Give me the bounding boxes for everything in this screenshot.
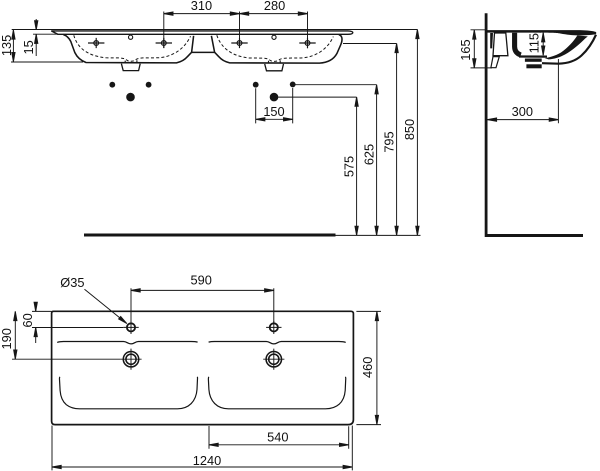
svg-text:540: 540	[267, 430, 288, 445]
svg-text:575: 575	[341, 156, 356, 177]
svg-text:795: 795	[381, 131, 396, 152]
svg-text:280: 280	[264, 0, 285, 13]
svg-text:150: 150	[263, 104, 284, 119]
svg-text:115: 115	[527, 33, 542, 53]
svg-text:590: 590	[191, 272, 212, 287]
svg-text:135: 135	[0, 35, 14, 56]
svg-text:850: 850	[402, 119, 417, 140]
svg-text:1240: 1240	[193, 453, 221, 468]
svg-text:15: 15	[21, 40, 36, 54]
svg-text:625: 625	[361, 144, 376, 165]
svg-text:165: 165	[458, 39, 473, 60]
svg-text:460: 460	[360, 357, 375, 378]
svg-text:60: 60	[20, 313, 35, 327]
svg-text:190: 190	[0, 328, 14, 349]
svg-text:300: 300	[512, 104, 533, 119]
svg-text:310: 310	[191, 0, 212, 13]
svg-text:Ø35: Ø35	[60, 275, 84, 290]
